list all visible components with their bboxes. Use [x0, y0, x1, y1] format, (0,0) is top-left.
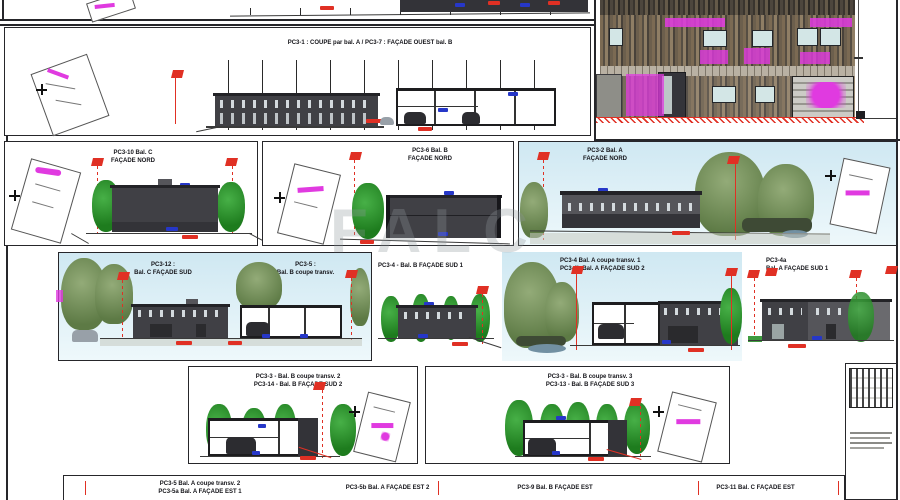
section-floor-line: [398, 106, 478, 107]
red-dim: [182, 235, 198, 239]
elevation-roof: [131, 304, 230, 307]
site-key-highlight: [47, 68, 69, 79]
red-leader: [731, 276, 732, 350]
pond: [528, 344, 566, 353]
elevation-roof: [213, 93, 380, 96]
north-symbol-h: [9, 195, 20, 197]
magenta-annotation: [56, 290, 63, 302]
title-line: PC3-11 Bal. C FAÇADE EST: [716, 485, 794, 491]
est-title-4: PC3-11 Bal. C FAÇADE EST: [688, 485, 823, 493]
blue-dim: [552, 451, 560, 455]
red-flag: [91, 158, 104, 166]
ground-line: [200, 456, 340, 457]
north-symbol-h: [349, 411, 360, 413]
window-row: [816, 308, 846, 315]
red-dim: [418, 127, 432, 131]
blue-dim: [252, 451, 260, 455]
panel-nord-b-title: PC3-6 Bal. B FAÇADE NORD: [385, 148, 475, 163]
parked-car: [72, 330, 98, 342]
red-leader-dashed: [482, 294, 483, 344]
title-line: PC3-5 Bal. A coupe transv. 2: [160, 481, 240, 487]
red-leader-dashed: [640, 406, 641, 458]
window: [703, 30, 727, 47]
car-outside: [380, 117, 394, 125]
red-dim: [176, 341, 192, 345]
section-post: [589, 423, 591, 454]
car-in-section: [598, 324, 624, 339]
car-in-section: [404, 112, 426, 124]
blue-dim: [556, 416, 566, 420]
est-title-2: PC3-5b Bal. A FAÇADE EST 2: [310, 485, 465, 493]
window-row-lower: [220, 113, 373, 124]
red-dim: [320, 6, 334, 10]
red-leader-dashed: [122, 280, 123, 340]
red-leader: [735, 164, 736, 240]
red-leader-dashed: [322, 390, 323, 458]
red-flag: [629, 398, 642, 406]
site-key-line: [56, 100, 82, 105]
elevation-roof: [396, 305, 478, 308]
window: [820, 28, 841, 46]
red-flag: [725, 268, 738, 276]
elevation-sud-b1: [398, 306, 476, 338]
elevation-roof: [760, 299, 892, 302]
red-flag: [225, 158, 238, 166]
legend-text-line: [850, 432, 892, 434]
top-strip-border-left: [2, 0, 4, 19]
magenta-annotation: [810, 18, 852, 27]
elevation-roof: [110, 185, 220, 188]
panel-coupe-ouest-title: PC3-1 : COUPE par bal. A / PC3-7 : FAÇAD…: [140, 40, 600, 48]
ground-line-ext: [862, 118, 896, 119]
site-key-line: [373, 406, 395, 412]
north-symbol-h: [274, 197, 285, 199]
elevation-sud-a1-left: [762, 300, 808, 340]
section-post: [434, 91, 436, 124]
title-line: PC3-13 - Bal. B FAÇADE SUD 3: [546, 382, 634, 388]
garage-opening: [668, 326, 698, 343]
red-flag: [765, 268, 778, 276]
red-flag: [171, 70, 184, 78]
side-structure: [596, 74, 622, 118]
tick: [350, 8, 351, 15]
ground-line: [86, 233, 252, 234]
title-line: PC3-3 - Bal. B coupe transv. 3: [548, 374, 633, 380]
window-row: [768, 308, 802, 315]
title-line: FAÇADE NORD: [583, 156, 627, 162]
blue-dim: [662, 340, 671, 344]
section-post: [304, 308, 306, 336]
door-opening: [196, 324, 206, 337]
title-line: PC3-3 - Bal. B coupe transv. 2: [256, 374, 341, 380]
magenta-annotation: [800, 52, 830, 64]
red-dim: [788, 344, 806, 348]
section-post: [624, 305, 626, 343]
site-key-line: [294, 201, 318, 208]
title-line: PC3-9 Bal. B FAÇADE EST: [517, 485, 592, 491]
boundary-post: [856, 111, 865, 119]
watermark: FALC: [330, 196, 540, 267]
top-strip-border-bottom2: [0, 24, 594, 26]
ground-line: [748, 340, 894, 341]
plan-sheet: FALC PC3-1 : COUPE par bal. A / PC3-7 : …: [0, 0, 900, 500]
magenta-annotation-large: [626, 74, 664, 116]
facade-attic-band: [600, 0, 855, 15]
red-flag: [476, 286, 489, 294]
red-flag: [747, 270, 760, 278]
site-key-top-highlight: [95, 3, 115, 9]
title-line: PC3-2 Bal. A: [587, 148, 622, 154]
red-leader-dashed: [754, 278, 755, 344]
site-key-line: [32, 201, 53, 208]
blue-dim: [438, 108, 448, 112]
red-flag: [117, 272, 130, 280]
title-line: Bal. B coupe transv.: [277, 270, 334, 276]
title-line: FAÇADE NORD: [111, 158, 155, 164]
window-row-upper: [220, 100, 373, 108]
blue-dim: [166, 227, 178, 231]
window: [609, 28, 623, 46]
elevation-base-band: [112, 222, 218, 232]
window: [752, 30, 773, 47]
red-dim: [228, 341, 242, 345]
red-dim: [300, 456, 316, 460]
title-line: PC3-5 :: [295, 262, 316, 268]
site-key-line: [678, 404, 702, 411]
blue-dim: [455, 3, 465, 7]
magenta-annotation: [665, 18, 725, 27]
title-line: FAÇADE NORD: [408, 156, 452, 162]
red-dim: [588, 457, 604, 461]
red-flag: [537, 152, 550, 160]
measure-tick: [854, 57, 863, 59]
red-dim: [688, 348, 704, 352]
tick: [250, 8, 251, 15]
panel-sud-b2-title: PC3-3 - Bal. B coupe transv. 2 PC3-14 - …: [218, 374, 378, 389]
red-flag: [885, 266, 898, 274]
tree: [848, 292, 874, 342]
blue-dim: [258, 424, 266, 428]
red-flag: [849, 270, 862, 278]
site-key-highlight: [297, 186, 323, 193]
title-line: PC3-5b Bal. A FAÇADE EST 2: [346, 485, 430, 491]
site-key-dot: [380, 431, 391, 442]
red-dim: [548, 1, 560, 5]
magenta-annotation: [700, 50, 728, 64]
red-dim: [488, 1, 500, 5]
red-tick: [838, 481, 839, 495]
tree-real: [545, 282, 579, 342]
red-dim: [672, 231, 690, 235]
tree-real: [236, 262, 282, 310]
window-row: [138, 310, 223, 317]
legend-symbol-grid: [849, 368, 893, 408]
title-line: PC3-4a: [766, 258, 786, 264]
legend-text-line: [850, 442, 892, 444]
tick: [300, 8, 301, 15]
north-symbol-h: [653, 411, 664, 413]
elevation-roof: [560, 191, 702, 195]
tree: [624, 402, 650, 454]
red-leader-dashed: [351, 278, 352, 340]
window: [755, 86, 775, 103]
blue-dim: [520, 3, 530, 7]
window-row: [568, 203, 694, 211]
garage-opening: [150, 324, 172, 337]
title-line: PC3-14 - Bal. B FAÇADE SUD 2: [254, 382, 342, 388]
red-flag: [313, 382, 326, 390]
window: [712, 86, 736, 103]
site-key-highlight: [371, 423, 393, 428]
est-title-1: PC3-5 Bal. A coupe transv. 2 PC3-5a Bal.…: [120, 481, 280, 496]
legend-text-line: [850, 447, 884, 449]
ground-line: [570, 345, 740, 346]
measure-line: [858, 0, 859, 112]
red-flag: [571, 266, 584, 274]
car-in-section: [462, 112, 480, 124]
blue-dim: [812, 336, 822, 340]
door-opening: [826, 324, 836, 339]
panel-sud-c-title: PC3-12 : Bal. C FAÇADE SUD: [118, 262, 208, 277]
panel-nord-a-title: PC3-2 Bal. A FAÇADE NORD: [560, 148, 650, 163]
site-key-line: [849, 174, 873, 180]
site-key-highlight: [35, 167, 62, 177]
red-flag: [345, 270, 358, 278]
north-symbol-h: [36, 89, 47, 91]
red-flag: [727, 156, 740, 164]
window-row: [404, 312, 470, 319]
red-leader: [576, 274, 577, 350]
hedge: [748, 336, 762, 342]
title-line: PC3-6 Bal. B: [412, 148, 448, 154]
title-line: PC3-5a Bal. A FAÇADE EST 1: [158, 489, 241, 495]
legend-text-line: [850, 437, 890, 439]
window: [797, 28, 818, 46]
site-key-line: [46, 83, 76, 89]
elevation-base: [206, 126, 384, 128]
elevation-base-band: [562, 214, 700, 228]
site-key-line: [35, 183, 60, 191]
site-key-highlight: [846, 190, 870, 195]
top-strip-border-bottom1: [0, 19, 594, 21]
red-tick: [85, 481, 86, 495]
magenta-annotation: [744, 48, 770, 64]
ground-hatch-red: [596, 117, 864, 123]
tree: [217, 182, 245, 232]
door-opening: [772, 324, 784, 339]
north-symbol-h: [825, 175, 836, 177]
red-dim: [452, 342, 468, 346]
red-flag: [349, 152, 362, 160]
blue-dim: [508, 92, 518, 96]
site-key-highlight: [676, 419, 700, 424]
title-line: Bal. C FAÇADE SUD: [134, 270, 192, 276]
magenta-scribble-garage: [806, 82, 846, 108]
top-strip-baseline: [230, 12, 590, 16]
red-leader: [175, 78, 176, 124]
panel-sud-b3-title: PC3-3 - Bal. B coupe transv. 3 PC3-13 - …: [510, 374, 670, 389]
title-line: PC3-12 :: [151, 262, 175, 268]
title-line: PC3-4 Bal. A coupe transv. 1: [560, 258, 640, 264]
title-line: PC3-10 Bal. C: [113, 150, 152, 156]
est-title-3: PC3-9 Bal. B FAÇADE EST: [485, 485, 625, 493]
section-post: [278, 421, 280, 454]
